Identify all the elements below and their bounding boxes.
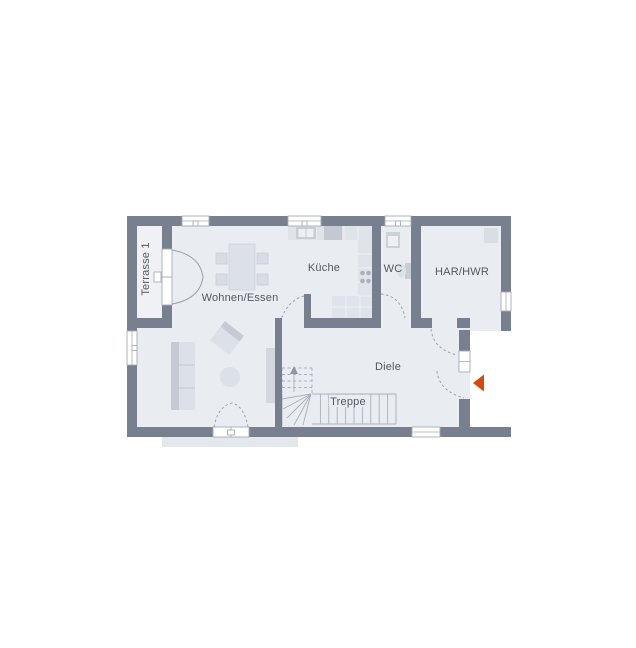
door-handle (228, 430, 235, 435)
floorplan-drawing: Terrasse 1 Wohnen/Essen Küche WC HAR/HWR… (0, 0, 636, 648)
label-stairs: Treppe (330, 396, 366, 408)
wall-hall-c (457, 318, 470, 328)
sofa-seat (179, 342, 195, 410)
window-hall-bottom (412, 427, 440, 437)
sideboard (266, 348, 276, 403)
label-har-hwr: HAR/HWR (435, 266, 489, 278)
outdoor-pad (162, 437, 298, 447)
window-handle (193, 221, 198, 226)
label-terrace: Terrasse 1 (140, 242, 152, 295)
label-wc: WC (384, 263, 403, 275)
wall-wc-har (411, 226, 421, 328)
window-handle (302, 221, 307, 226)
dining-chair (257, 274, 268, 285)
sofa-back (171, 342, 179, 410)
dining-chair (216, 253, 227, 264)
window-handle (132, 346, 137, 351)
window-living-left (127, 331, 137, 365)
label-kitchen: Küche (308, 262, 340, 274)
wall-terrace-divider-b (162, 305, 172, 318)
wall-bottom-a (127, 427, 213, 437)
wall-entry-a (459, 330, 470, 352)
wall-bottom-b (249, 427, 412, 437)
floorplan-page: Terrasse 1 Wohnen/Essen Küche WC HAR/HWR… (0, 0, 636, 648)
wall-left-lower (127, 365, 137, 437)
kitchen-oven (324, 226, 342, 240)
wall-terrace-divider-a (162, 226, 172, 249)
wall-hall-a (304, 318, 381, 328)
label-hallway: Diele (375, 361, 401, 373)
window-wc-top (385, 216, 411, 226)
wall-bottom-c (440, 427, 511, 437)
wall-right-upper (501, 216, 511, 292)
sofa (171, 342, 195, 410)
kitchen-sink-bowl (299, 229, 306, 237)
kitchen-sink-bowl (307, 229, 314, 237)
label-living-dining: Wohnen/Essen (202, 292, 279, 304)
round-table (220, 367, 240, 387)
wall-entry-b (459, 399, 470, 427)
window-handle (396, 221, 401, 226)
wall-right-mid (501, 311, 511, 331)
wc-sink-bowl (388, 236, 398, 246)
window-har-right (501, 292, 511, 311)
wall-living-hall (275, 318, 282, 427)
wall-left-upper (127, 216, 137, 331)
dining-chair (216, 274, 227, 285)
window-kitchen-top (288, 216, 321, 226)
window-living-top (182, 216, 209, 226)
dining-table (229, 244, 255, 290)
utility-fixture (484, 228, 498, 243)
dining-chair (257, 253, 268, 264)
wall-kitchen-wc (372, 226, 381, 318)
wall-terrace-bottom (127, 318, 172, 328)
entry-porch-floor (470, 331, 511, 427)
wall-hall-b (421, 318, 432, 328)
door-handle (154, 272, 161, 282)
